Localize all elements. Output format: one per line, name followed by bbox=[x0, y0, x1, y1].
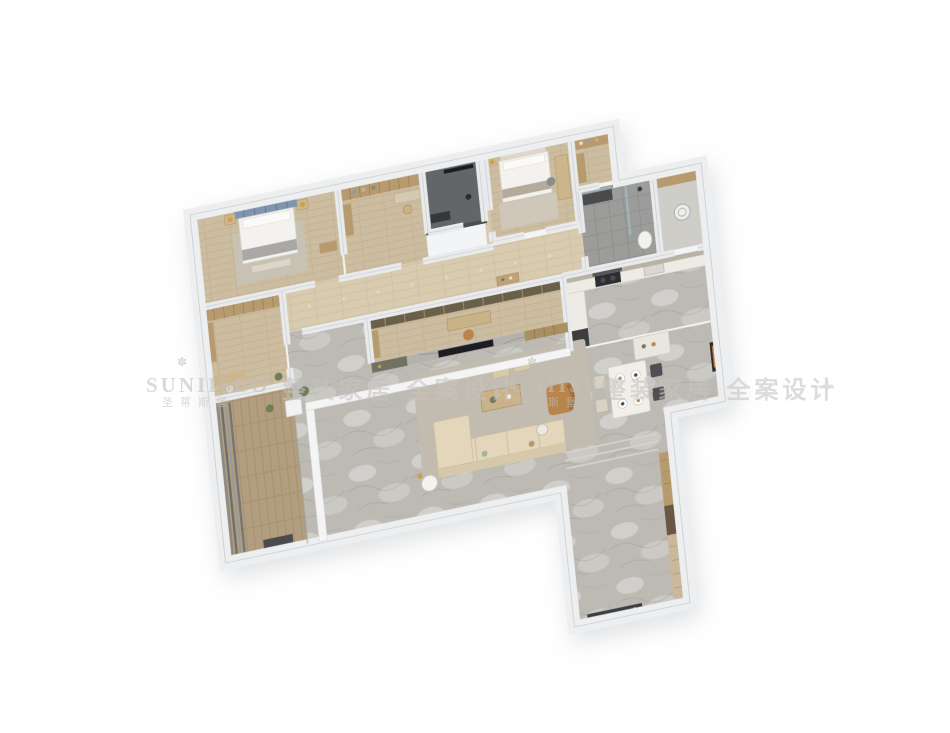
floorplan-render: ✽ SUNIISBO 圣蒂斯堡 整装家居 全案设计 ✽ SUNIISBO 圣蒂斯… bbox=[0, 0, 950, 733]
watermark-separator: + bbox=[822, 375, 834, 397]
watermark-brand-cn: 圣蒂斯堡 bbox=[512, 395, 584, 409]
floorplan-page: ✽ SUNIISBO 圣蒂斯堡 整装家居 全案设计 ✽ SUNIISBO 圣蒂斯… bbox=[0, 0, 950, 733]
sofa-chaise bbox=[433, 415, 473, 469]
crown-icon: ✽ bbox=[177, 355, 187, 369]
watermark-brand: SUNIISBO bbox=[146, 373, 270, 397]
watermark-slogan: 整装家居 全案设计 bbox=[602, 376, 838, 404]
crown-icon: ✽ bbox=[527, 355, 537, 369]
watermark-slogan: 整装家居 全案设计 bbox=[282, 376, 518, 404]
watermark-brand-cn: 圣蒂斯堡 bbox=[162, 395, 234, 409]
